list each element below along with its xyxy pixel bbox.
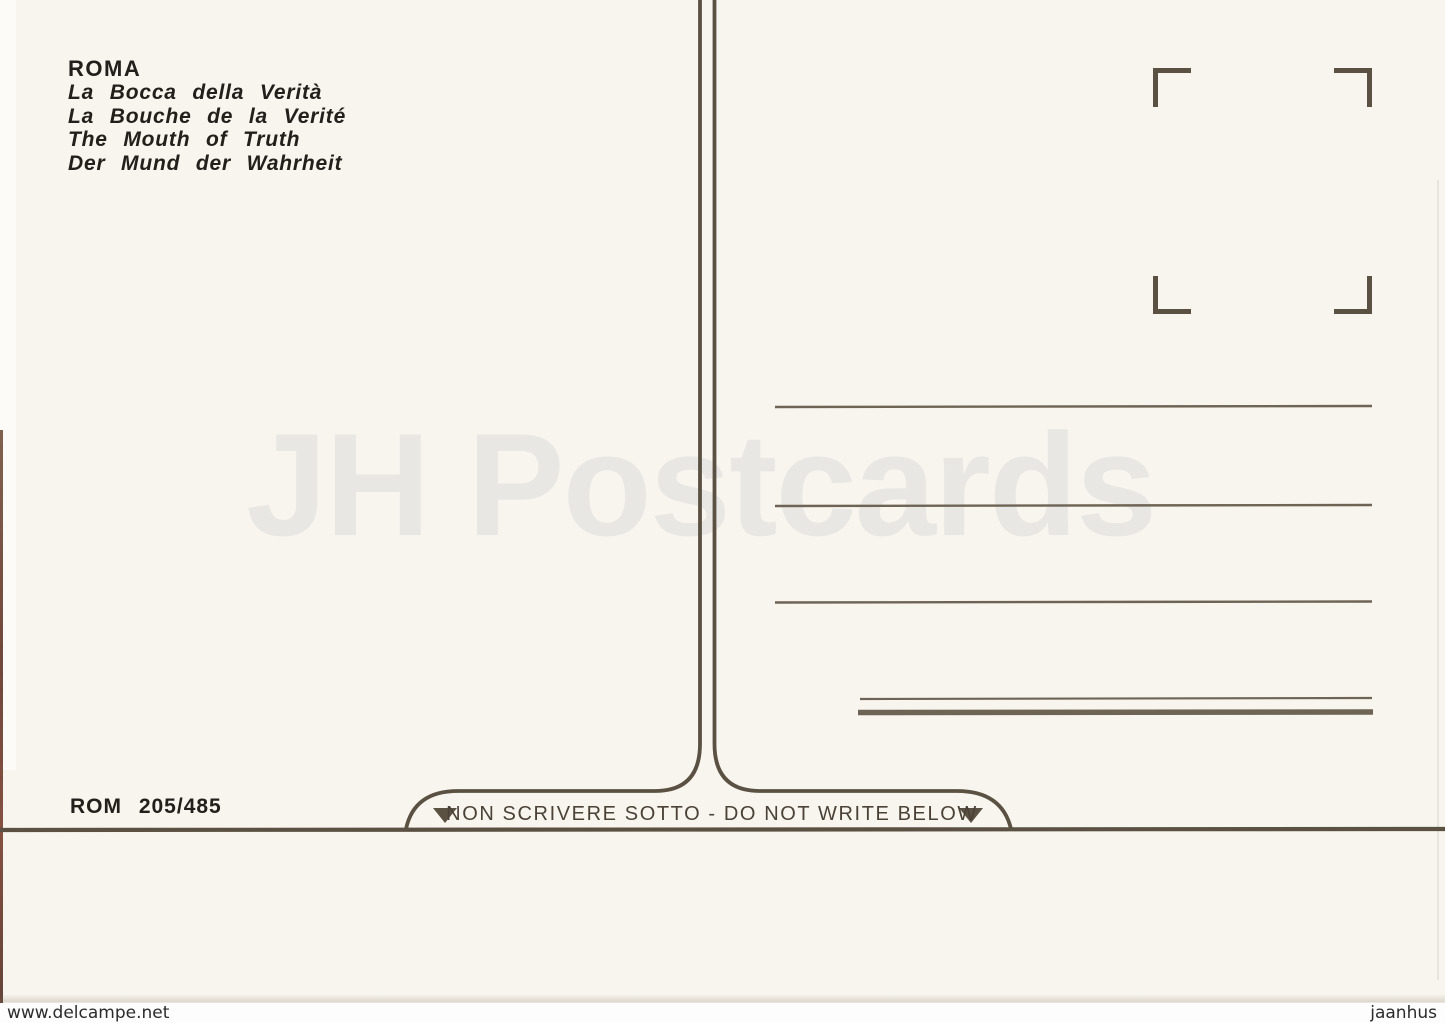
address-lines bbox=[775, 406, 1373, 713]
banner-text: NON SCRIVERE SOTTO - DO NOT WRITE BELOW bbox=[446, 803, 978, 826]
subtitle-english: The Mouth of Truth bbox=[68, 128, 346, 152]
address-line bbox=[775, 505, 1372, 506]
stamp-corner-top-left-icon bbox=[1156, 71, 1192, 108]
postcard-back-scan: JH Postcards ROMA La Bo bbox=[0, 0, 1445, 1023]
subtitle-german: Der Mund der Wahrheit bbox=[68, 152, 346, 176]
center-divider bbox=[406, 0, 1011, 829]
subtitle-italian: La Bocca della Verità bbox=[68, 81, 346, 105]
subtitle-french: La Bouche de la Verité bbox=[68, 105, 346, 129]
postcard-title: ROMA bbox=[68, 57, 346, 81]
stamp-corner-bottom-right-icon bbox=[1334, 276, 1370, 312]
stamp-corner-top-right-icon bbox=[1334, 71, 1370, 108]
bottom-rule-line bbox=[0, 829, 1445, 830]
divider-left-line bbox=[406, 0, 700, 829]
divider-right-line bbox=[715, 0, 1012, 829]
scan-credit-right: jaanhus bbox=[1370, 1003, 1437, 1023]
stamp-corner-marks bbox=[1156, 71, 1370, 312]
title-block: ROMA La Bocca della Verità La Bouche de … bbox=[68, 57, 346, 175]
address-line bbox=[860, 698, 1372, 699]
address-line-thick bbox=[858, 712, 1373, 713]
scan-credit-left: www.delcampe.net bbox=[7, 1003, 169, 1023]
address-line bbox=[775, 406, 1372, 407]
catalog-number: ROM 205/485 bbox=[70, 795, 222, 819]
address-line bbox=[775, 602, 1372, 603]
stamp-corner-bottom-left-icon bbox=[1156, 276, 1192, 312]
